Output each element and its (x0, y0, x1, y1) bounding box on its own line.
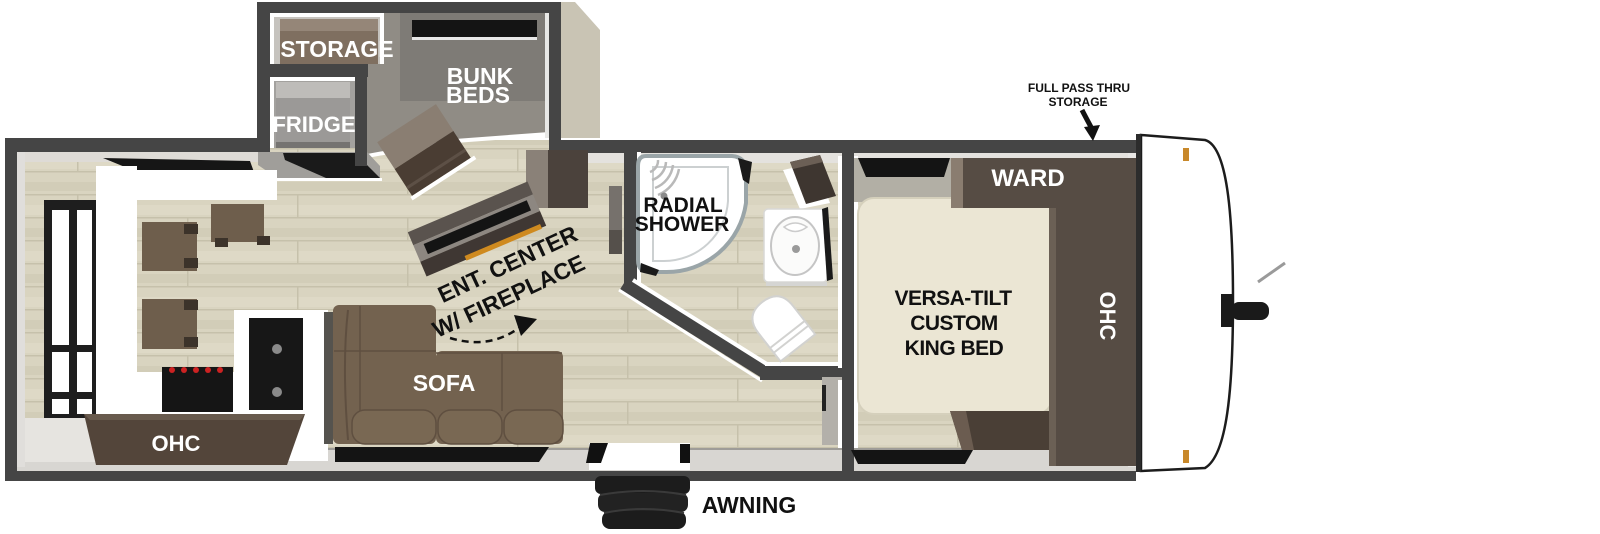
svg-text:FRIDGE: FRIDGE (272, 112, 355, 137)
svg-text:AWNING: AWNING (702, 492, 797, 518)
svg-text:STORAGE: STORAGE (1048, 95, 1107, 109)
svg-text:OHC: OHC (152, 431, 201, 456)
svg-text:SHOWER: SHOWER (635, 213, 730, 236)
svg-text:WARD: WARD (991, 165, 1064, 192)
svg-text:FULL PASS THRU: FULL PASS THRU (1028, 81, 1130, 95)
svg-text:KING BED: KING BED (905, 337, 1004, 360)
svg-text:VERSA-TILT: VERSA-TILT (894, 287, 1012, 310)
svg-text:STORAGE: STORAGE (280, 36, 393, 62)
svg-text:OHC: OHC (1095, 292, 1120, 341)
svg-text:BEDS: BEDS (446, 82, 510, 108)
svg-text:SOFA: SOFA (413, 370, 476, 396)
svg-text:CUSTOM: CUSTOM (910, 312, 998, 335)
